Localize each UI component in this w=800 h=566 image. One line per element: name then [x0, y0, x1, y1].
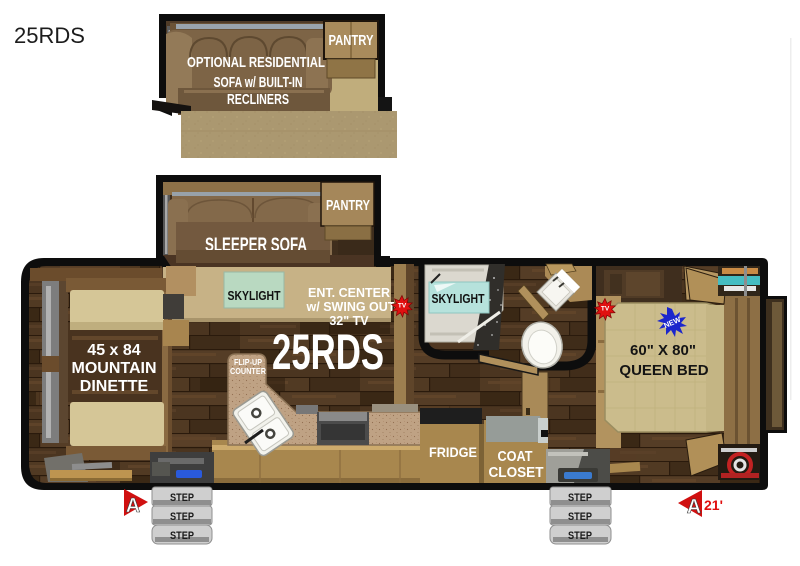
svg-text:w/ SWING OUT: w/ SWING OUT [306, 300, 396, 314]
svg-text:QUEEN BED: QUEEN BED [619, 362, 708, 379]
svg-text:DINETTE: DINETTE [80, 378, 149, 395]
svg-text:COUNTER: COUNTER [230, 366, 266, 376]
svg-text:STEP: STEP [568, 530, 592, 542]
svg-text:45 x 84: 45 x 84 [87, 342, 140, 359]
svg-text:STEP: STEP [568, 492, 592, 504]
svg-text:STEP: STEP [170, 530, 194, 542]
svg-text:A: A [126, 495, 140, 517]
svg-text:COAT: COAT [498, 449, 533, 465]
svg-text:SKYLIGHT: SKYLIGHT [432, 291, 485, 306]
svg-text:MOUNTAIN: MOUNTAIN [71, 360, 156, 377]
svg-text:FRIDGE: FRIDGE [429, 444, 477, 460]
svg-text:60" X 80": 60" X 80" [630, 342, 696, 359]
svg-text:PANTRY: PANTRY [326, 197, 370, 214]
svg-text:OPTIONAL RESIDENTIAL: OPTIONAL RESIDENTIAL [187, 54, 325, 71]
svg-text:STEP: STEP [170, 511, 194, 523]
svg-text:TV: TV [601, 306, 610, 313]
svg-text:A: A [687, 496, 701, 518]
svg-text:RECLINERS: RECLINERS [227, 91, 289, 108]
svg-text:TV: TV [398, 303, 407, 310]
svg-text:SOFA w/ BUILT-IN: SOFA w/ BUILT-IN [214, 74, 303, 91]
svg-text:CLOSET: CLOSET [489, 465, 544, 481]
svg-text:ENT. CENTER: ENT. CENTER [308, 286, 390, 300]
svg-text:21': 21' [704, 497, 723, 513]
svg-text:STEP: STEP [170, 492, 194, 504]
svg-text:25RDS: 25RDS [14, 23, 85, 48]
svg-text:STEP: STEP [568, 511, 592, 523]
svg-text:PANTRY: PANTRY [329, 32, 374, 49]
svg-text:25RDS: 25RDS [272, 324, 384, 380]
svg-text:SKYLIGHT: SKYLIGHT [228, 288, 281, 303]
